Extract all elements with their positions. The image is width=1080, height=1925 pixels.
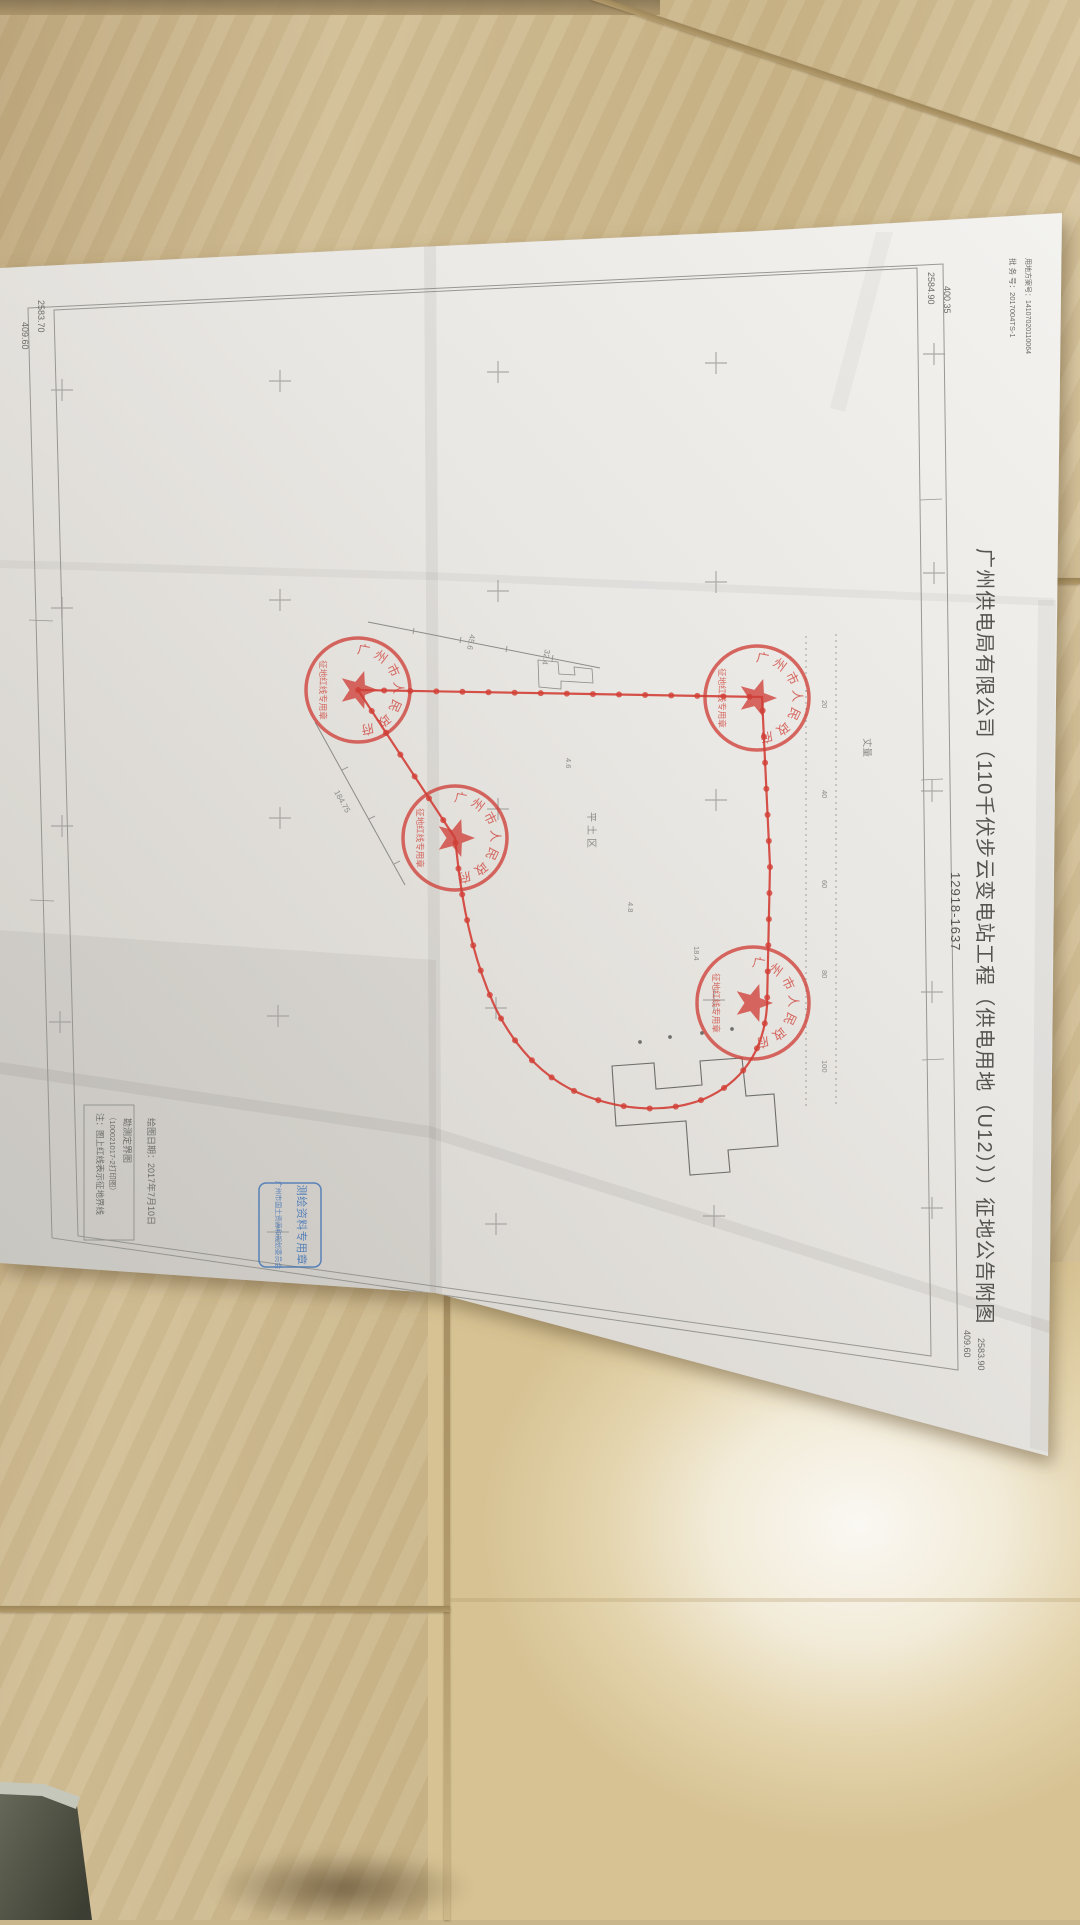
corner-coordinate: 409.60 bbox=[20, 322, 30, 350]
ruler-tick: 80 bbox=[820, 970, 829, 978]
area-label: 平土区 bbox=[585, 812, 598, 851]
blue-stamp-title: 测绘资料专用章 bbox=[295, 1185, 309, 1266]
corner-coordinate: 400.35 bbox=[942, 286, 952, 314]
corner-coordinate: 2583.70 bbox=[36, 300, 46, 333]
blue-stamp-org: 广州市国土资源和规划委员会 bbox=[274, 1181, 283, 1270]
dimension-label: 18.4 bbox=[692, 946, 701, 961]
seal-banner-text: 征地红线专用章 bbox=[415, 808, 425, 868]
note-line: 注：图上红线表示征地界线 bbox=[95, 1113, 105, 1216]
seal-banner-text: 征地红线专用章 bbox=[318, 660, 328, 720]
map-title: 广州供电局有限公司（110千伏步云变电站工程（供电用地（U12）））征地公告附图 bbox=[973, 548, 996, 1325]
note-line: 勘测定界图 bbox=[122, 1118, 133, 1163]
ruler-tick: 20 bbox=[820, 700, 829, 708]
landuse-plan-number: 用地方案号：14107020110064 bbox=[1024, 258, 1033, 354]
approval-number: 批 务 号：2017004TS-1 bbox=[1008, 258, 1018, 338]
dimension-label: 4.6 bbox=[564, 758, 573, 768]
official-seal: 广州市人民政府 征地红线专用章 bbox=[403, 786, 507, 890]
official-seal: 广州市人民政府 征地红线专用章 bbox=[705, 646, 809, 750]
ruler-tick: 60 bbox=[820, 880, 829, 888]
note-line: （100021017-2打印图） bbox=[108, 1113, 118, 1195]
drawing-date: 绘图日期：2017年7月10日 bbox=[146, 1118, 157, 1225]
ruler-label: 丈量 bbox=[861, 738, 872, 758]
sheet-number: 12918-1637 bbox=[948, 872, 963, 951]
corner-coordinate: 2584.90 bbox=[926, 272, 936, 305]
ruler-tick: 100 bbox=[820, 1060, 829, 1073]
document-photo: 45.6 32.4 184.75 4.6 4.8 18.4 20 40 60 8… bbox=[0, 0, 1080, 1920]
corner-coordinate: 409.60 bbox=[962, 1330, 972, 1358]
seal-banner-text: 征地红线专用章 bbox=[717, 668, 727, 728]
seal-banner-text: 征地红线专用章 bbox=[711, 973, 721, 1033]
corner-coordinate: 2583.90 bbox=[976, 1338, 986, 1371]
official-seal: 广州市人民政府 征地红线专用章 bbox=[306, 638, 410, 742]
official-seal: 广州市人民政府 征地红线专用章 bbox=[697, 947, 809, 1059]
dimension-label: 4.8 bbox=[626, 902, 635, 912]
ruler-tick: 40 bbox=[820, 790, 829, 798]
